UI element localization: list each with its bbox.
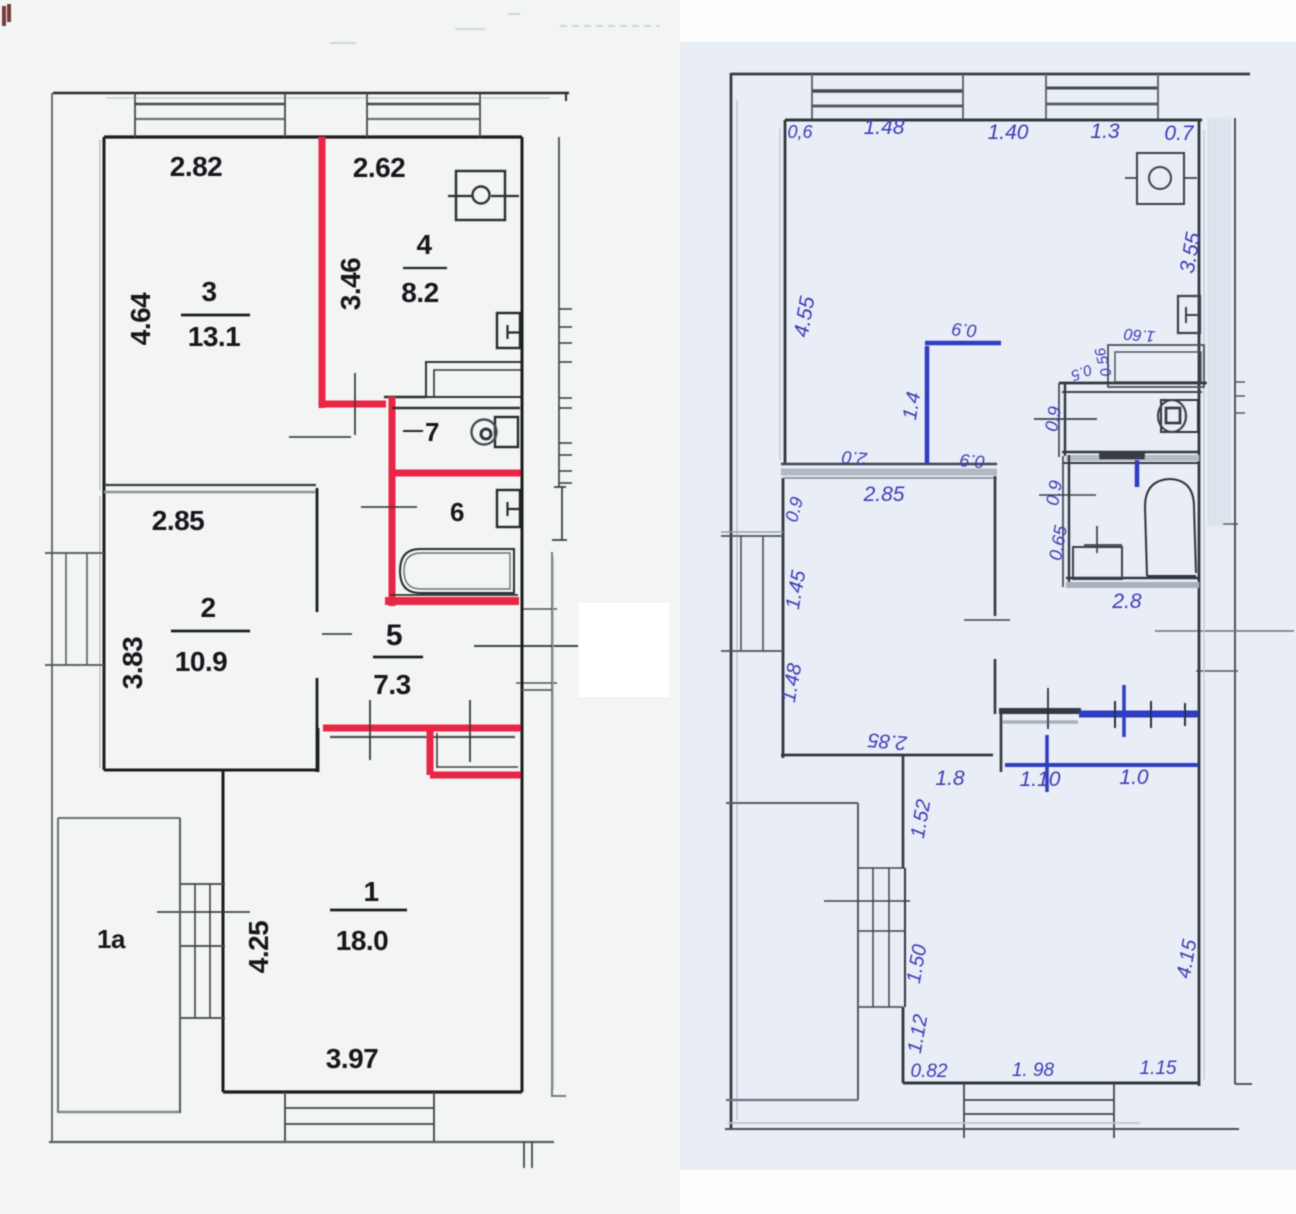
svg-text:2.8: 2.8 (1111, 590, 1142, 613)
svg-text:10.9: 10.9 (175, 646, 228, 677)
svg-text:1.48: 1.48 (864, 116, 905, 139)
svg-text:1.40: 1.40 (988, 121, 1029, 144)
svg-text:3.97: 3.97 (326, 1043, 379, 1074)
svg-text:0.82: 0.82 (911, 1061, 948, 1082)
svg-text:2.85: 2.85 (863, 483, 905, 506)
svg-text:1: 1 (363, 876, 378, 907)
svg-text:0,6: 0,6 (787, 122, 813, 142)
svg-text:7.3: 7.3 (373, 669, 410, 700)
svg-text:1.3: 1.3 (1090, 120, 1120, 143)
svg-text:18.0: 18.0 (336, 925, 389, 956)
svg-text:6: 6 (450, 497, 464, 527)
svg-text:1.8: 1.8 (935, 767, 965, 790)
svg-text:2.85: 2.85 (152, 505, 205, 536)
svg-text:0.9: 0.9 (1041, 405, 1065, 433)
svg-text:1a: 1a (97, 924, 126, 954)
svg-text:4.64: 4.64 (125, 292, 156, 345)
svg-text:0.9: 0.9 (951, 319, 978, 341)
svg-text:1.0: 1.0 (1119, 766, 1149, 789)
svg-text:2: 2 (200, 592, 215, 623)
svg-text:0.9: 0.9 (959, 450, 986, 472)
svg-text:0.7: 0.7 (1164, 122, 1195, 145)
svg-text:2.0: 2.0 (841, 447, 869, 469)
svg-text:8.2: 8.2 (401, 277, 438, 308)
svg-text:4.25: 4.25 (243, 921, 274, 974)
svg-text:4: 4 (416, 229, 432, 260)
svg-text:1.60: 1.60 (1123, 325, 1156, 345)
svg-text:13.1: 13.1 (188, 321, 241, 352)
svg-text:1.15: 1.15 (1140, 1058, 1177, 1079)
svg-text:0.9: 0.9 (1042, 479, 1066, 507)
svg-text:1.10: 1.10 (1020, 768, 1061, 791)
svg-text:5: 5 (386, 619, 402, 652)
svg-text:7: 7 (425, 417, 439, 447)
svg-text:2.82: 2.82 (170, 151, 223, 182)
svg-text:1. 98: 1. 98 (1012, 1060, 1055, 1081)
svg-text:3.46: 3.46 (335, 258, 366, 311)
svg-text:3.83: 3.83 (117, 637, 148, 690)
svg-text:3: 3 (201, 276, 216, 307)
svg-text:2.85: 2.85 (866, 728, 909, 753)
svg-text:2.62: 2.62 (353, 152, 406, 183)
